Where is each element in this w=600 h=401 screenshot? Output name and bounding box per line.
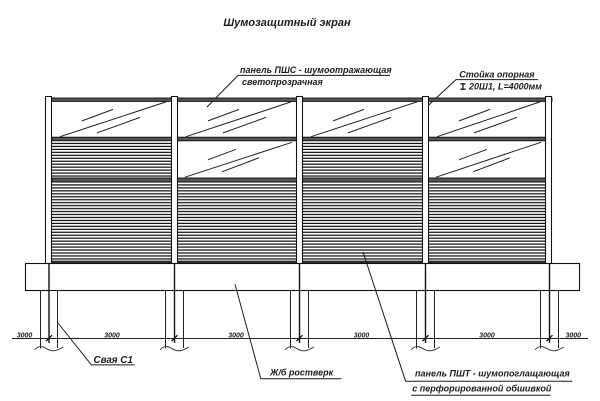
svg-text:Ж/б ростверк: Ж/б ростверк: [269, 368, 334, 378]
svg-text:Стойка опорная: Стойка опорная: [459, 69, 535, 79]
svg-text:20Ш1, L=4000мм: 20Ш1, L=4000мм: [468, 82, 542, 92]
svg-text:3000: 3000: [566, 332, 582, 339]
svg-text:светопрозрачная: светопрозрачная: [242, 77, 324, 87]
svg-text:Шумозащитный экран: Шумозащитный экран: [223, 17, 351, 29]
svg-text:3000: 3000: [228, 332, 244, 339]
svg-text:с перфорированной обшивкой: с перфорированной обшивкой: [412, 384, 552, 394]
svg-text:Свая С1: Свая С1: [94, 355, 133, 366]
svg-text:панель ПШТ - шумопоглащающая: панель ПШТ - шумопоглащающая: [415, 369, 570, 379]
svg-text:3000: 3000: [354, 332, 370, 339]
svg-text:3000: 3000: [17, 332, 33, 339]
svg-text:3000: 3000: [104, 332, 120, 339]
svg-text:3000: 3000: [479, 332, 495, 339]
svg-text:панель ПШС - шумоотражающая: панель ПШС - шумоотражающая: [240, 65, 392, 75]
